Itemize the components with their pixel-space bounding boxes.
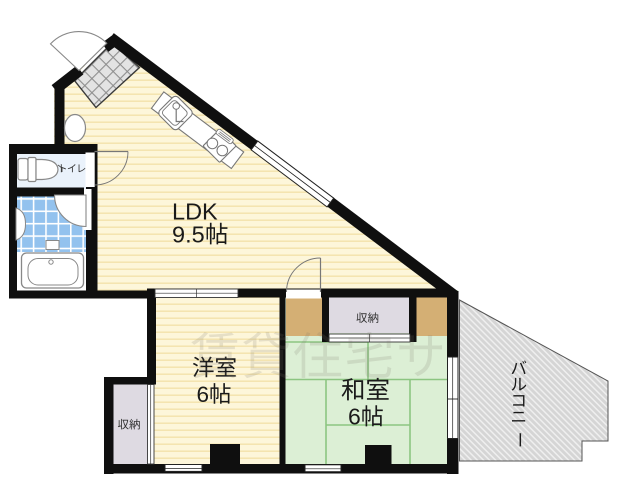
svg-text:9.5: 9.5 (172, 222, 205, 248)
svg-text:6: 6 (197, 382, 210, 407)
svg-text:6: 6 (348, 404, 361, 430)
